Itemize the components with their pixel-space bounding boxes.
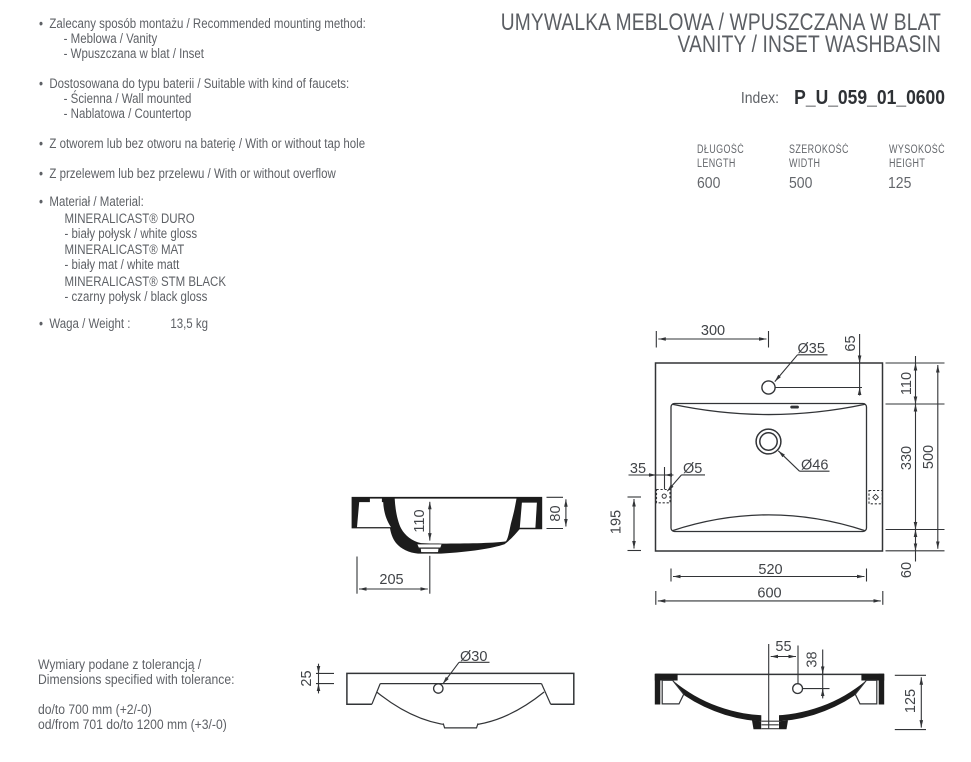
- svg-text:600: 600: [757, 586, 781, 602]
- svg-text:110: 110: [899, 372, 915, 395]
- svg-text:300: 300: [701, 323, 725, 339]
- svg-text:330: 330: [899, 446, 915, 470]
- svg-text:110: 110: [412, 509, 428, 532]
- svg-text:Ø30: Ø30: [460, 649, 487, 665]
- svg-text:65: 65: [843, 335, 859, 351]
- svg-text:25: 25: [299, 670, 315, 686]
- svg-text:60: 60: [899, 562, 915, 578]
- svg-text:500: 500: [921, 445, 937, 469]
- svg-text:520: 520: [758, 562, 782, 578]
- svg-text:125: 125: [903, 689, 919, 713]
- svg-text:38: 38: [805, 651, 821, 667]
- svg-text:195: 195: [608, 510, 624, 534]
- svg-text:35: 35: [630, 461, 646, 477]
- svg-text:55: 55: [775, 639, 791, 655]
- svg-text:Ø46: Ø46: [801, 458, 828, 474]
- svg-text:80: 80: [548, 505, 564, 521]
- svg-text:205: 205: [379, 572, 403, 588]
- svg-text:Ø35: Ø35: [798, 341, 825, 357]
- svg-text:Ø5: Ø5: [683, 461, 702, 477]
